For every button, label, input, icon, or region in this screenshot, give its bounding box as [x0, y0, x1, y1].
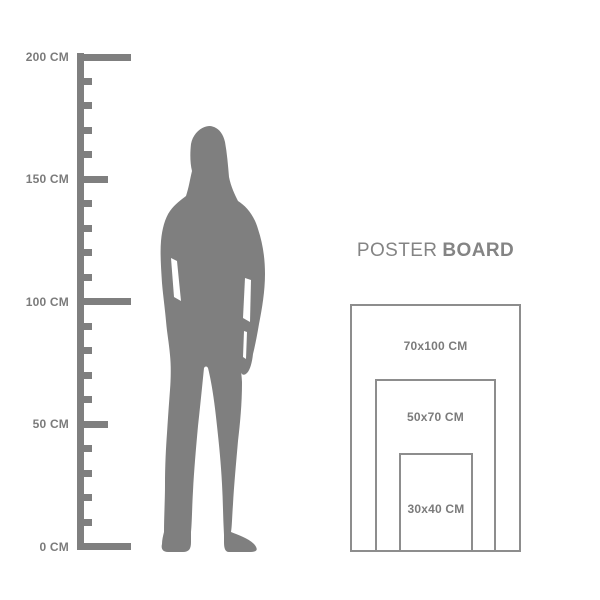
- ruler-tick-160cm: [77, 151, 92, 158]
- board-size-30x40: 30x40 CM: [399, 453, 473, 552]
- ruler-tick-50cm: [77, 421, 108, 428]
- board-size-50x70-label: 50x70 CM: [377, 410, 494, 424]
- ruler-label-0cm: 0 CM: [0, 539, 69, 555]
- ruler-tick-20cm: [77, 494, 92, 501]
- ruler-label-50cm: 50 CM: [0, 416, 69, 432]
- ruler-tick-90cm: [77, 323, 92, 330]
- ruler-tick-80cm: [77, 347, 92, 354]
- ruler-tick-60cm: [77, 396, 92, 403]
- ruler-tick-30cm: [77, 470, 92, 477]
- poster-title-regular: POSTER: [357, 240, 438, 261]
- poster-title-bold: BOARD: [442, 240, 514, 261]
- ruler-tick-70cm: [77, 372, 92, 379]
- board-size-30x40-label: 30x40 CM: [401, 502, 471, 516]
- ruler-tick-40cm: [77, 445, 92, 452]
- ruler-label-200cm: 200 CM: [0, 49, 69, 65]
- board-size-70x100-label: 70x100 CM: [352, 339, 519, 353]
- poster-board-title: POSTERBOARD: [340, 241, 531, 260]
- ruler-tick-120cm: [77, 249, 92, 256]
- ruler-label-100cm: 100 CM: [0, 294, 69, 310]
- ruler-tick-10cm: [77, 519, 92, 526]
- ruler-tick-200cm: [77, 54, 131, 61]
- ruler-tick-130cm: [77, 225, 92, 232]
- ruler-tick-0cm: [77, 543, 131, 550]
- ruler-tick-110cm: [77, 274, 92, 281]
- ruler-tick-100cm: [77, 298, 131, 305]
- ruler-tick-190cm: [77, 78, 92, 85]
- woman-silhouette-icon: [158, 125, 266, 553]
- ruler-tick-170cm: [77, 127, 92, 134]
- size-guide-diagram: 200 CM150 CM100 CM50 CM0 CM POSTERBOARD …: [0, 0, 600, 600]
- ruler-label-150cm: 150 CM: [0, 171, 69, 187]
- ruler-tick-140cm: [77, 200, 92, 207]
- ruler-tick-150cm: [77, 176, 108, 183]
- ruler-tick-180cm: [77, 102, 92, 109]
